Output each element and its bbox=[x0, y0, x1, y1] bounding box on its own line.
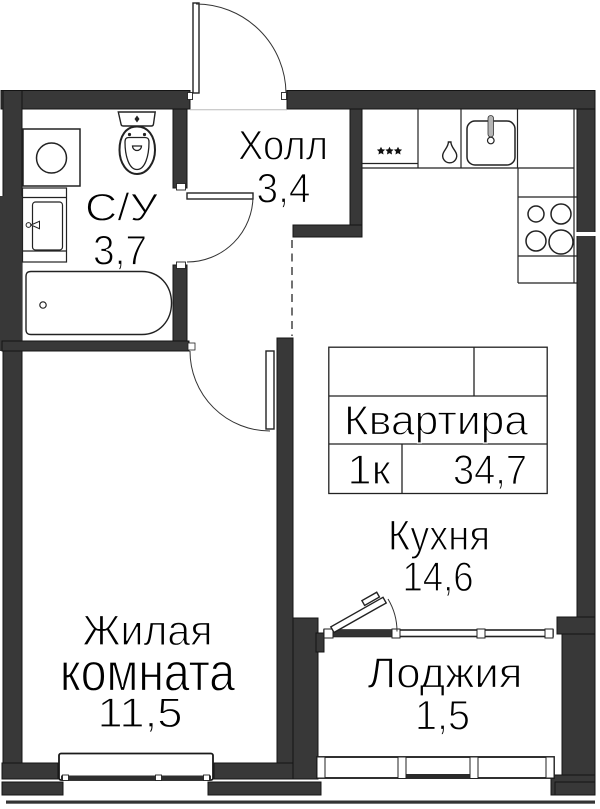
svg-text:Квартира: Квартира bbox=[344, 397, 529, 444]
svg-text:34,7: 34,7 bbox=[453, 446, 527, 493]
svg-text:14,6: 14,6 bbox=[403, 553, 474, 600]
svg-text:1,5: 1,5 bbox=[415, 692, 470, 739]
svg-text:11,5: 11,5 bbox=[98, 689, 183, 736]
svg-text:3,4: 3,4 bbox=[257, 165, 311, 212]
svg-text:1к: 1к bbox=[348, 446, 392, 493]
svg-text:Лоджия: Лоджия bbox=[368, 650, 523, 698]
svg-text:3,7: 3,7 bbox=[93, 227, 147, 274]
svg-text:С/У: С/У bbox=[85, 187, 158, 230]
svg-text:Холл: Холл bbox=[238, 122, 328, 169]
